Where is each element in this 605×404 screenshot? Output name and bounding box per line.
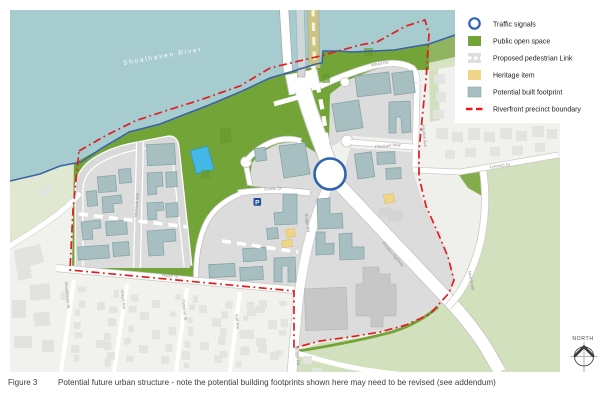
svg-text:NORTH: NORTH [572, 336, 593, 342]
svg-text:P: P [255, 199, 260, 206]
svg-text:Potential future urban structu: Potential future urban structure - note … [58, 378, 496, 387]
svg-text:Riverfront precinct boundary: Riverfront precinct boundary [493, 107, 581, 114]
svg-text:Scenic Dr: Scenic Dr [264, 185, 283, 191]
svg-text:Heritage item: Heritage item [493, 73, 535, 80]
svg-text:Proposed pedestrian Link: Proposed pedestrian Link [493, 56, 573, 63]
svg-text:Traffic signals: Traffic signals [493, 22, 536, 29]
svg-text:Figure 3: Figure 3 [8, 378, 38, 387]
svg-text:Potential built footprint: Potential built footprint [493, 90, 562, 97]
svg-text:Public open space: Public open space [493, 39, 550, 46]
